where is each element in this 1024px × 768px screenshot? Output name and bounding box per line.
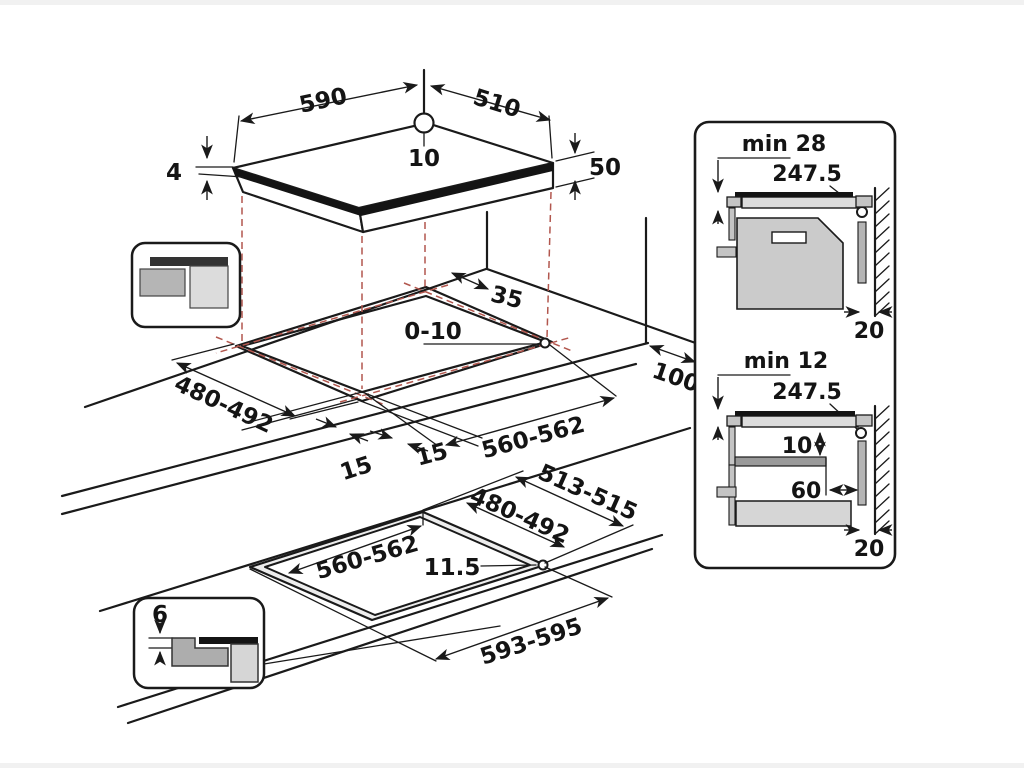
dim-wall-gap: 20 [854,537,885,562]
drawer-body [736,501,851,526]
dim-edge-height: 50 [589,155,621,181]
dim-wall-gap: 20 [854,319,885,344]
installation-diagram-page: 480-492 560-562 15 15 35 0-10 1 [0,0,1024,768]
page-bottom-strip [0,763,1024,768]
dim-flush-outer-width: 593-595 [477,613,585,670]
page-top-strip [0,0,1024,5]
drawer-shelf [735,457,826,466]
dim-glass-thickness: 4 [166,160,182,186]
worktop-bar [150,257,228,266]
rear-spacer [858,441,866,505]
fixing-point-marker [856,428,866,438]
label-min-clearance: min 12 [744,349,828,374]
dim-hole-range: 0-10 [404,319,462,345]
hob-surface [735,411,855,416]
inset-overlap-detail [132,243,240,327]
cabinet-block [190,266,228,308]
cable-hole-marker [415,114,434,133]
dim-corner-clearance: 35 [488,281,525,314]
dim-hob-depth: 510 [470,85,524,124]
fixing-hole-marker [541,339,550,348]
rear-spacer [858,222,866,283]
cabinet-block [231,644,258,682]
dim-cutout-depth: 480-492 [170,371,277,439]
ledge-dimension-left: 15 [242,392,376,486]
hob-body-block [140,269,185,296]
dim-hole-offset: 10 [408,146,440,172]
label-min-clearance: min 28 [742,132,826,157]
hob-installation-drawing: 480-492 560-562 15 15 35 0-10 1 [0,0,1024,768]
dim-hob-width: 590 [297,83,349,118]
label-center-distance: 247.5 [772,162,842,187]
dim-cutout-width: 560-562 [479,412,588,464]
worktop-cutout-view: 480-492 560-562 15 15 35 0-10 1 [62,192,704,514]
hob-isometric-view: 10 590 510 4 50 [166,70,621,232]
oven-display [772,232,806,243]
svg-text:15: 15 [337,452,375,487]
dim-shelf-gap: 10 [782,434,813,459]
worktop-slab [742,416,858,427]
hob-surface [735,192,853,197]
label-center-distance: 247.5 [772,380,842,405]
worktop-bar [199,637,258,644]
dim-flush-step: 11.5 [424,555,481,581]
svg-text:15: 15 [413,438,451,471]
side-sections-panel: min 28 247.5 20 [695,122,895,568]
worktop-slab [742,197,858,208]
